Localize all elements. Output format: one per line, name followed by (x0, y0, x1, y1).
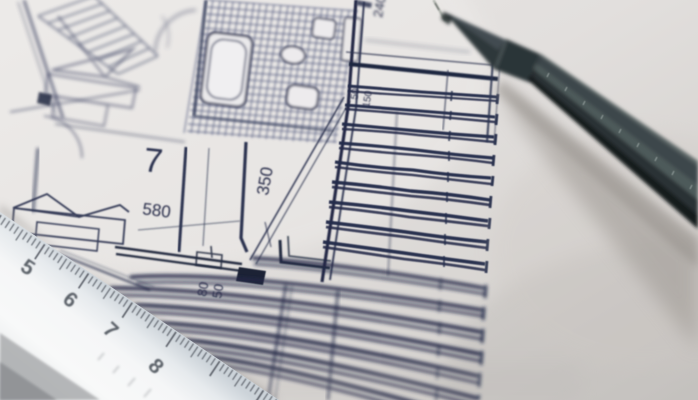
svg-text:7: 7 (142, 141, 165, 181)
svg-text:580: 580 (141, 199, 171, 221)
